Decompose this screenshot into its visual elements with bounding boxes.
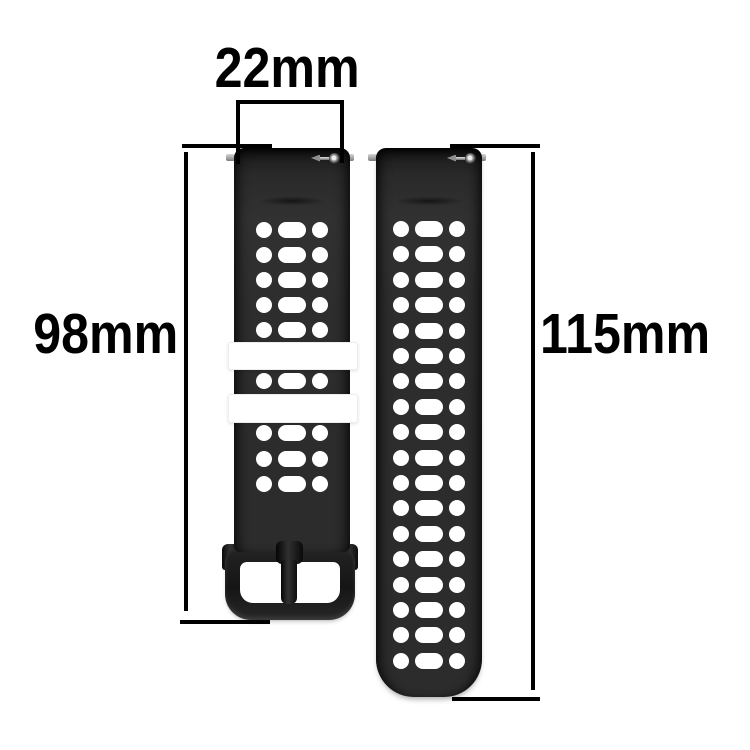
dimension-extension-width-left xyxy=(236,100,240,164)
strap-hole xyxy=(393,373,409,389)
strap-hole xyxy=(256,476,272,492)
strap-hole xyxy=(312,373,328,389)
strap-hole xyxy=(312,425,328,441)
strap-hole-row xyxy=(393,577,465,593)
strap-hole-row xyxy=(393,348,465,364)
strap-hole xyxy=(415,526,443,542)
strap-hole xyxy=(312,222,328,238)
strap-hole-row xyxy=(393,475,465,491)
strap-hole xyxy=(415,246,443,262)
quick-release-tip xyxy=(447,155,456,162)
watch-strap-dimension-diagram: 22mm 98mm 115mm xyxy=(0,0,750,750)
strap-hole xyxy=(415,297,443,313)
strap-hole-row xyxy=(393,424,465,440)
strap-hole-row xyxy=(256,451,328,467)
strap-hole-row xyxy=(393,246,465,262)
strap-hole xyxy=(449,602,465,618)
strap-hole xyxy=(449,551,465,567)
strap-hole xyxy=(256,272,272,288)
right-strap-length-label: 115mm xyxy=(540,306,716,363)
strap-hole-row xyxy=(393,399,465,415)
strap-hole xyxy=(278,451,306,467)
strap-hole xyxy=(415,551,443,567)
quick-release-lever-icon xyxy=(447,152,476,164)
strap-hole xyxy=(393,627,409,643)
strap-hole xyxy=(393,500,409,516)
strap-hole xyxy=(278,425,306,441)
strap-hole xyxy=(312,451,328,467)
strap-hole xyxy=(449,399,465,415)
strap-hole xyxy=(415,653,443,669)
quick-release-knob xyxy=(465,153,476,164)
strap-hole xyxy=(278,373,306,389)
strap-hole xyxy=(449,627,465,643)
strap-hole xyxy=(393,272,409,288)
strap-hole xyxy=(449,373,465,389)
strap-hole xyxy=(449,450,465,466)
dimension-tick-right-top xyxy=(450,144,540,148)
strap-hole xyxy=(393,246,409,262)
strap-hole-row xyxy=(256,222,328,238)
strap-hole-row xyxy=(393,221,465,237)
strap-hole xyxy=(393,450,409,466)
dimension-tick-left-bottom xyxy=(180,620,270,624)
strap-hole-row xyxy=(393,602,465,618)
strap-hole xyxy=(449,272,465,288)
strap-hole-row xyxy=(393,297,465,313)
dimension-line-left-strap-length xyxy=(184,152,188,611)
strap-hole-row xyxy=(393,272,465,288)
strap-hole xyxy=(393,399,409,415)
strap-hole-row xyxy=(393,500,465,516)
quick-release-tip xyxy=(311,155,320,162)
strap-hole xyxy=(312,322,328,338)
strap-hole xyxy=(415,272,443,288)
strap-hole xyxy=(393,526,409,542)
strap-hole-row xyxy=(393,373,465,389)
strap-hole xyxy=(415,627,443,643)
strap-hole-row xyxy=(393,653,465,669)
strap-hole xyxy=(256,373,272,389)
strap-hole xyxy=(393,297,409,313)
strap-hole xyxy=(312,272,328,288)
strap-hole xyxy=(256,425,272,441)
strap-hole xyxy=(415,475,443,491)
quick-release-bar xyxy=(320,157,329,160)
strap-hole xyxy=(449,500,465,516)
strap-hole xyxy=(449,653,465,669)
strap-hole-row xyxy=(256,425,328,441)
strap-hole xyxy=(415,450,443,466)
buckle-prong xyxy=(281,560,297,604)
strap-hole xyxy=(256,451,272,467)
strap-hole xyxy=(415,373,443,389)
dimension-tick-left-top xyxy=(182,144,272,148)
strap-hole xyxy=(415,577,443,593)
quick-release-knob xyxy=(329,153,340,164)
strap-hole xyxy=(312,297,328,313)
width-dimension-label: 22mm xyxy=(215,40,356,97)
quick-release-bar xyxy=(456,157,465,160)
strap-hole-row xyxy=(256,247,328,263)
strap-groove xyxy=(384,194,474,208)
dimension-extension-width-right xyxy=(340,100,344,163)
strap-hole xyxy=(449,348,465,364)
strap-hole xyxy=(256,222,272,238)
strap-hole-row xyxy=(256,297,328,313)
strap-hole xyxy=(415,323,443,339)
dimension-tick-right-bottom xyxy=(452,697,540,701)
strap-hole xyxy=(312,247,328,263)
strap-hole xyxy=(449,577,465,593)
strap-hole-row xyxy=(256,476,328,492)
strap-hole xyxy=(312,476,328,492)
quick-release-lever-icon xyxy=(311,152,340,164)
strap-hole xyxy=(278,322,306,338)
strap-hole xyxy=(393,323,409,339)
strap-hole-row xyxy=(393,526,465,542)
strap-hole-row xyxy=(393,323,465,339)
strap-hole xyxy=(415,500,443,516)
strap-hole xyxy=(415,221,443,237)
strap-hole-row xyxy=(256,272,328,288)
strap-hole xyxy=(449,475,465,491)
strap-hole xyxy=(278,272,306,288)
strap-hole xyxy=(278,247,306,263)
strap-hole xyxy=(256,297,272,313)
keeper-loop-1 xyxy=(228,342,358,370)
strap-hole xyxy=(449,297,465,313)
strap-hole-row xyxy=(393,450,465,466)
strap-hole xyxy=(393,551,409,567)
strap-hole xyxy=(278,297,306,313)
right-strap xyxy=(376,148,482,697)
strap-hole xyxy=(393,475,409,491)
strap-hole-row xyxy=(393,551,465,567)
strap-hole xyxy=(449,526,465,542)
strap-hole xyxy=(415,424,443,440)
strap-hole xyxy=(393,577,409,593)
keeper-loop-2 xyxy=(228,394,358,423)
strap-hole xyxy=(449,221,465,237)
strap-hole xyxy=(393,653,409,669)
strap-hole xyxy=(415,399,443,415)
strap-hole xyxy=(393,348,409,364)
strap-hole xyxy=(415,348,443,364)
strap-hole xyxy=(449,323,465,339)
strap-hole xyxy=(449,246,465,262)
strap-hole xyxy=(449,424,465,440)
strap-hole-row xyxy=(393,627,465,643)
left-strap-length-label: 98mm xyxy=(33,306,174,363)
strap-groove xyxy=(247,194,337,208)
strap-hole xyxy=(415,602,443,618)
strap-hole xyxy=(278,476,306,492)
strap-hole xyxy=(256,247,272,263)
strap-hole-row xyxy=(256,322,328,338)
strap-hole xyxy=(256,322,272,338)
dimension-line-right-strap-length xyxy=(531,152,535,690)
strap-hole xyxy=(393,424,409,440)
dimension-line-width xyxy=(237,100,344,104)
strap-hole xyxy=(393,602,409,618)
strap-hole xyxy=(393,221,409,237)
strap-hole xyxy=(278,222,306,238)
strap-hole-row xyxy=(256,373,328,389)
